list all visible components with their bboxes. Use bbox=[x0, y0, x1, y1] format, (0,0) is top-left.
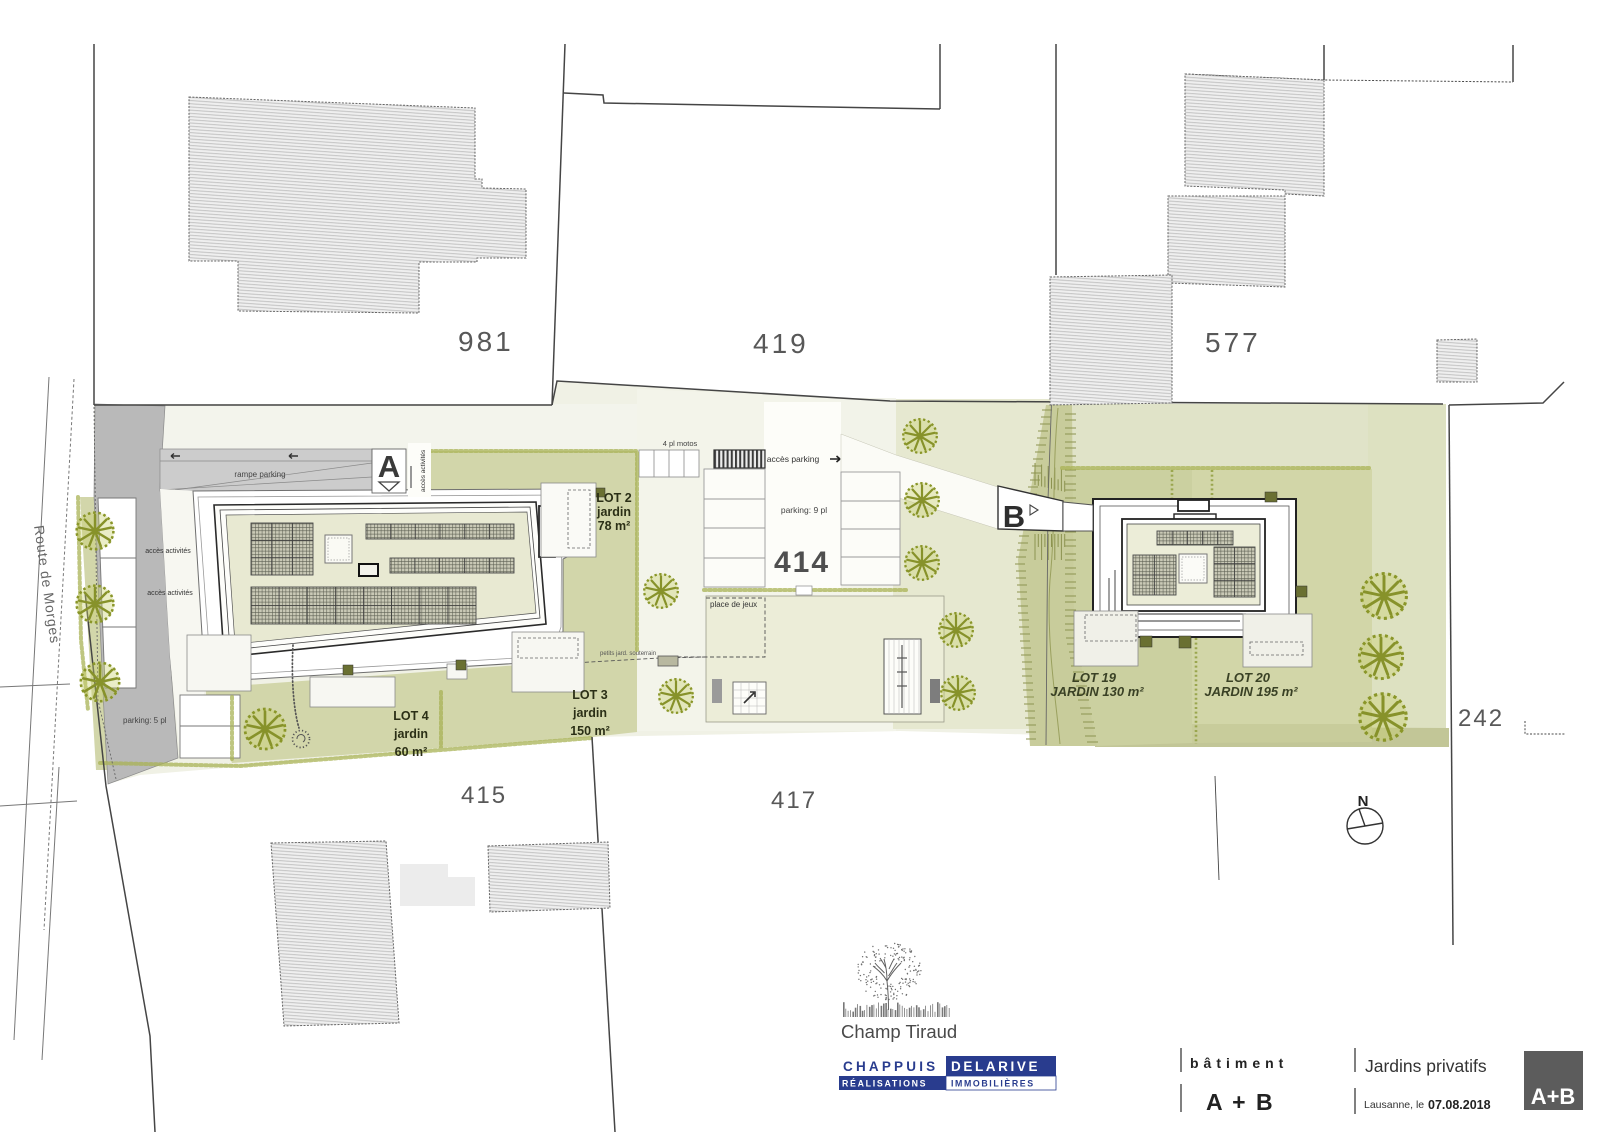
svg-text:A + B: A + B bbox=[1206, 1089, 1275, 1115]
svg-text:petits jard. souterrain: petits jard. souterrain bbox=[600, 651, 656, 657]
svg-text:JARDIN 130 m²: JARDIN 130 m² bbox=[1050, 684, 1144, 699]
svg-text:419: 419 bbox=[753, 328, 809, 359]
svg-text:LOT 2: LOT 2 bbox=[596, 491, 631, 505]
svg-text:Lausanne, le: Lausanne, le bbox=[1364, 1099, 1424, 1111]
svg-text:accès activités: accès activités bbox=[420, 449, 427, 492]
svg-text:jardin: jardin bbox=[596, 505, 631, 519]
svg-text:415: 415 bbox=[461, 782, 507, 809]
svg-text:414: 414 bbox=[774, 546, 830, 579]
svg-text:LOT 4: LOT 4 bbox=[393, 709, 428, 723]
svg-text:place de jeux: place de jeux bbox=[710, 600, 757, 609]
svg-text:Jardins privatifs: Jardins privatifs bbox=[1365, 1056, 1487, 1076]
svg-text:DELARIVE: DELARIVE bbox=[951, 1059, 1040, 1074]
svg-text:JARDIN 195 m²: JARDIN 195 m² bbox=[1204, 684, 1298, 699]
svg-text:IMMOBILIÈRES: IMMOBILIÈRES bbox=[951, 1079, 1035, 1089]
svg-text:150 m²: 150 m² bbox=[570, 724, 610, 738]
svg-text:CHAPPUIS: CHAPPUIS bbox=[843, 1059, 938, 1074]
svg-text:60 m²: 60 m² bbox=[395, 745, 428, 759]
svg-text:LOT 20: LOT 20 bbox=[1226, 670, 1271, 685]
svg-text:accès activités: accès activités bbox=[147, 590, 193, 597]
svg-text:rampe parking: rampe parking bbox=[234, 470, 285, 479]
svg-text:jardin: jardin bbox=[572, 706, 607, 720]
svg-text:parking: 5 pl: parking: 5 pl bbox=[123, 716, 167, 725]
svg-text:LOT 3: LOT 3 bbox=[572, 688, 607, 702]
svg-text:B: B bbox=[1003, 499, 1025, 534]
svg-text:N: N bbox=[1358, 793, 1369, 810]
svg-text:07.08.2018: 07.08.2018 bbox=[1428, 1098, 1491, 1112]
svg-text:bâtiment: bâtiment bbox=[1190, 1055, 1288, 1071]
svg-text:4 pl motos: 4 pl motos bbox=[663, 439, 698, 448]
svg-text:417: 417 bbox=[771, 787, 817, 814]
svg-text:78 m²: 78 m² bbox=[598, 519, 631, 533]
svg-text:Champ Tiraud: Champ Tiraud bbox=[841, 1021, 957, 1042]
svg-text:242: 242 bbox=[1458, 705, 1504, 732]
svg-text:parking: 9 pl: parking: 9 pl bbox=[781, 505, 827, 515]
svg-text:accès parking: accès parking bbox=[767, 454, 820, 464]
svg-text:jardin: jardin bbox=[393, 727, 428, 741]
svg-text:A: A bbox=[378, 449, 400, 484]
svg-text:RÉALISATIONS: RÉALISATIONS bbox=[842, 1079, 927, 1089]
svg-text:981: 981 bbox=[458, 326, 514, 357]
svg-text:accès activités: accès activités bbox=[145, 548, 191, 555]
svg-text:577: 577 bbox=[1205, 327, 1261, 358]
svg-text:A+B: A+B bbox=[1531, 1084, 1576, 1109]
svg-text:LOT 19: LOT 19 bbox=[1072, 670, 1117, 685]
